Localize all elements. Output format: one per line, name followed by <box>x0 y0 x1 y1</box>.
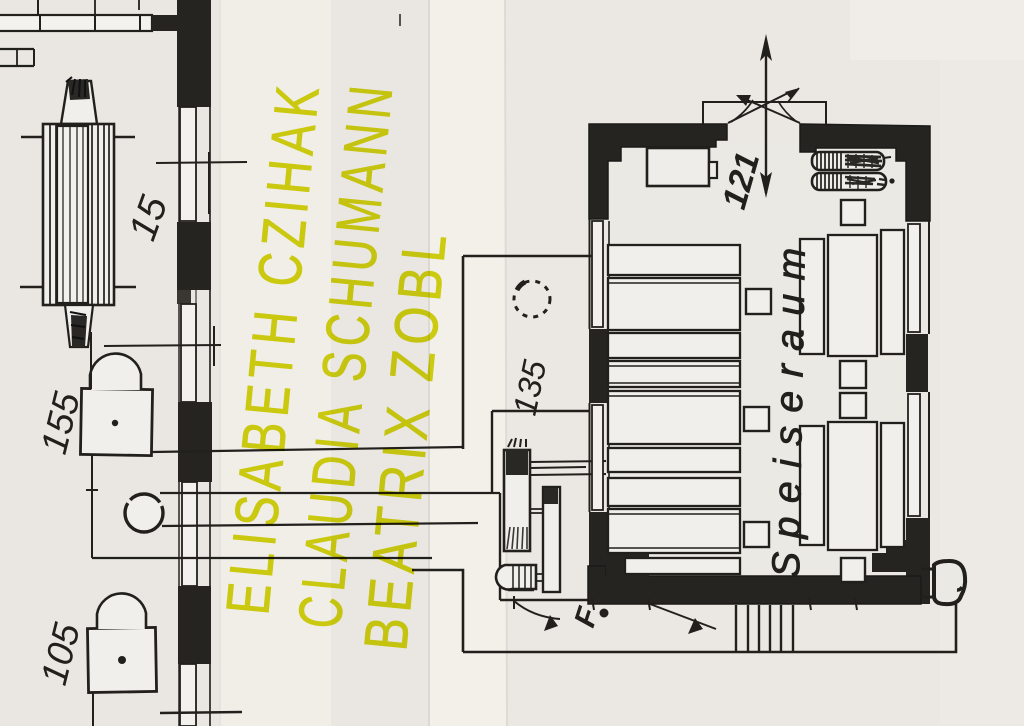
svg-text:Speiseraum: Speiseraum <box>765 239 814 578</box>
